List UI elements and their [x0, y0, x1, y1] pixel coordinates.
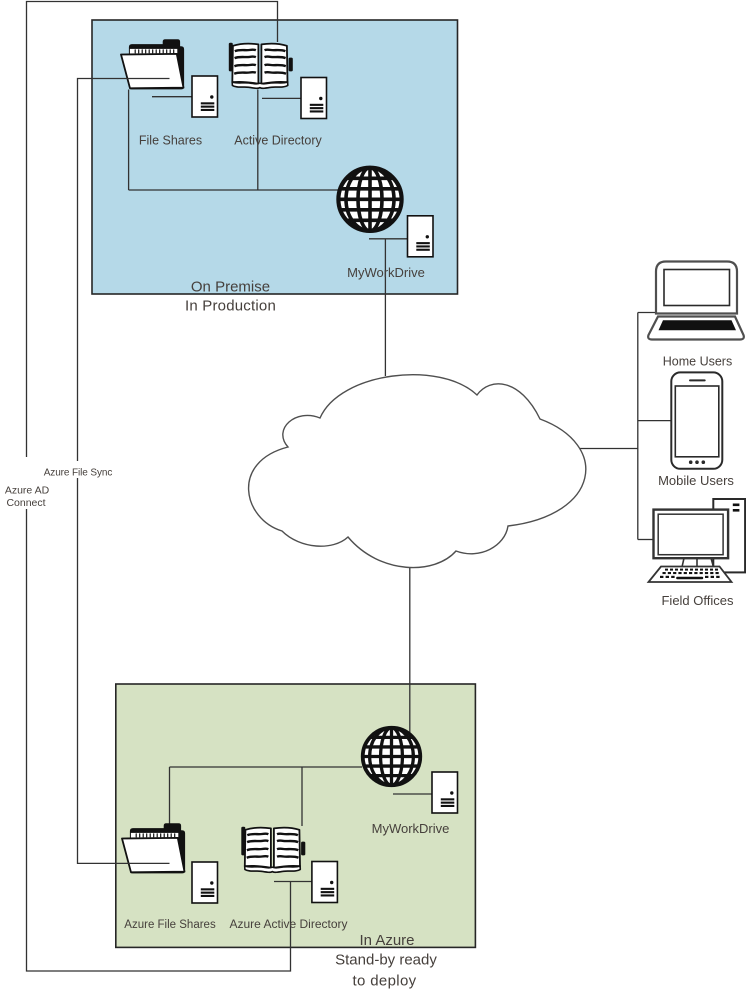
svg-text:Azure AD: Azure AD — [5, 485, 50, 497]
svg-text:Stand-by ready: Stand-by ready — [335, 952, 437, 969]
svg-text:Active Directory: Active Directory — [234, 134, 322, 148]
svg-text:Azure File Shares: Azure File Shares — [124, 919, 216, 931]
svg-text:Connect: Connect — [6, 497, 45, 509]
svg-text:MyWorkDrive: MyWorkDrive — [347, 265, 425, 280]
svg-text:Home Users: Home Users — [663, 355, 732, 369]
svg-text:Field Offices: Field Offices — [661, 593, 734, 608]
svg-text:Azure File Sync: Azure File Sync — [44, 468, 113, 479]
svg-text:File Shares: File Shares — [139, 134, 202, 148]
svg-text:In Azure: In Azure — [359, 932, 414, 949]
svg-text:On Premise: On Premise — [191, 279, 270, 296]
svg-text:to deploy: to deploy — [352, 973, 416, 990]
svg-text:Azure Active Directory: Azure Active Directory — [229, 917, 347, 931]
svg-text:In Production: In Production — [185, 298, 276, 315]
svg-text:Mobile Users: Mobile Users — [658, 473, 734, 488]
svg-text:MyWorkDrive: MyWorkDrive — [372, 821, 450, 836]
